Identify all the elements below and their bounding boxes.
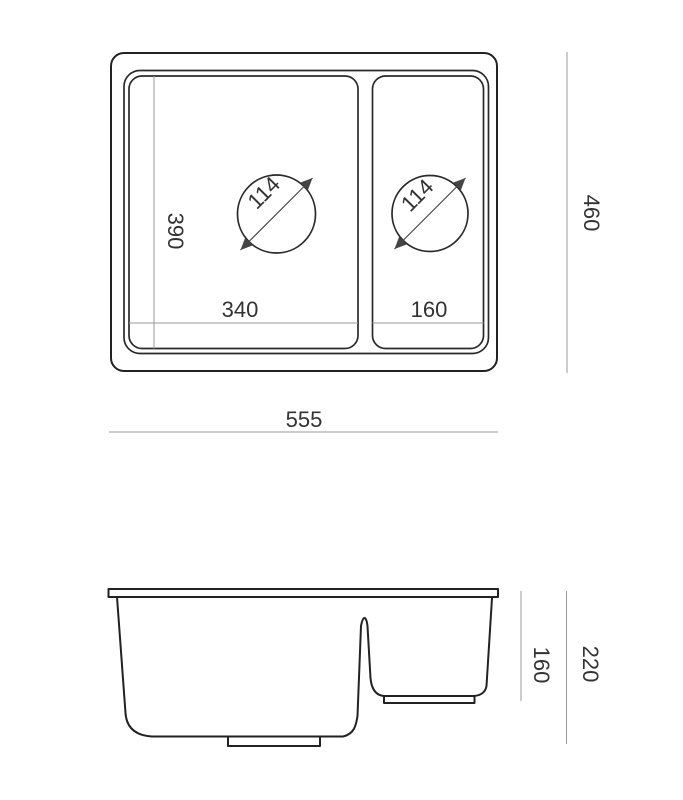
overall-depth-label: 460 xyxy=(579,195,604,232)
side-view-flange xyxy=(109,589,499,597)
overall-width-label: 555 xyxy=(286,407,323,432)
small-drain-diameter-label: 114 xyxy=(396,174,438,216)
overall-height-label: 220 xyxy=(578,646,603,683)
side-view: 160 220 xyxy=(109,589,604,746)
side-view-body-profile xyxy=(117,597,492,737)
small-basin-width-label: 160 xyxy=(411,297,448,322)
small-basin-height-label: 160 xyxy=(529,647,554,684)
sink-technical-drawing: 114 114 390 340 160 460 555 xyxy=(0,0,683,800)
large-basin-width-label: 340 xyxy=(222,297,259,322)
large-drain-diameter-label: 114 xyxy=(242,171,284,213)
small-basin-foot xyxy=(384,696,475,703)
top-view: 114 114 390 340 160 460 555 xyxy=(109,52,604,432)
basin-depth-label: 390 xyxy=(163,213,188,250)
drawing-svg: 114 114 390 340 160 460 555 xyxy=(0,0,683,800)
large-basin-foot xyxy=(228,737,320,747)
